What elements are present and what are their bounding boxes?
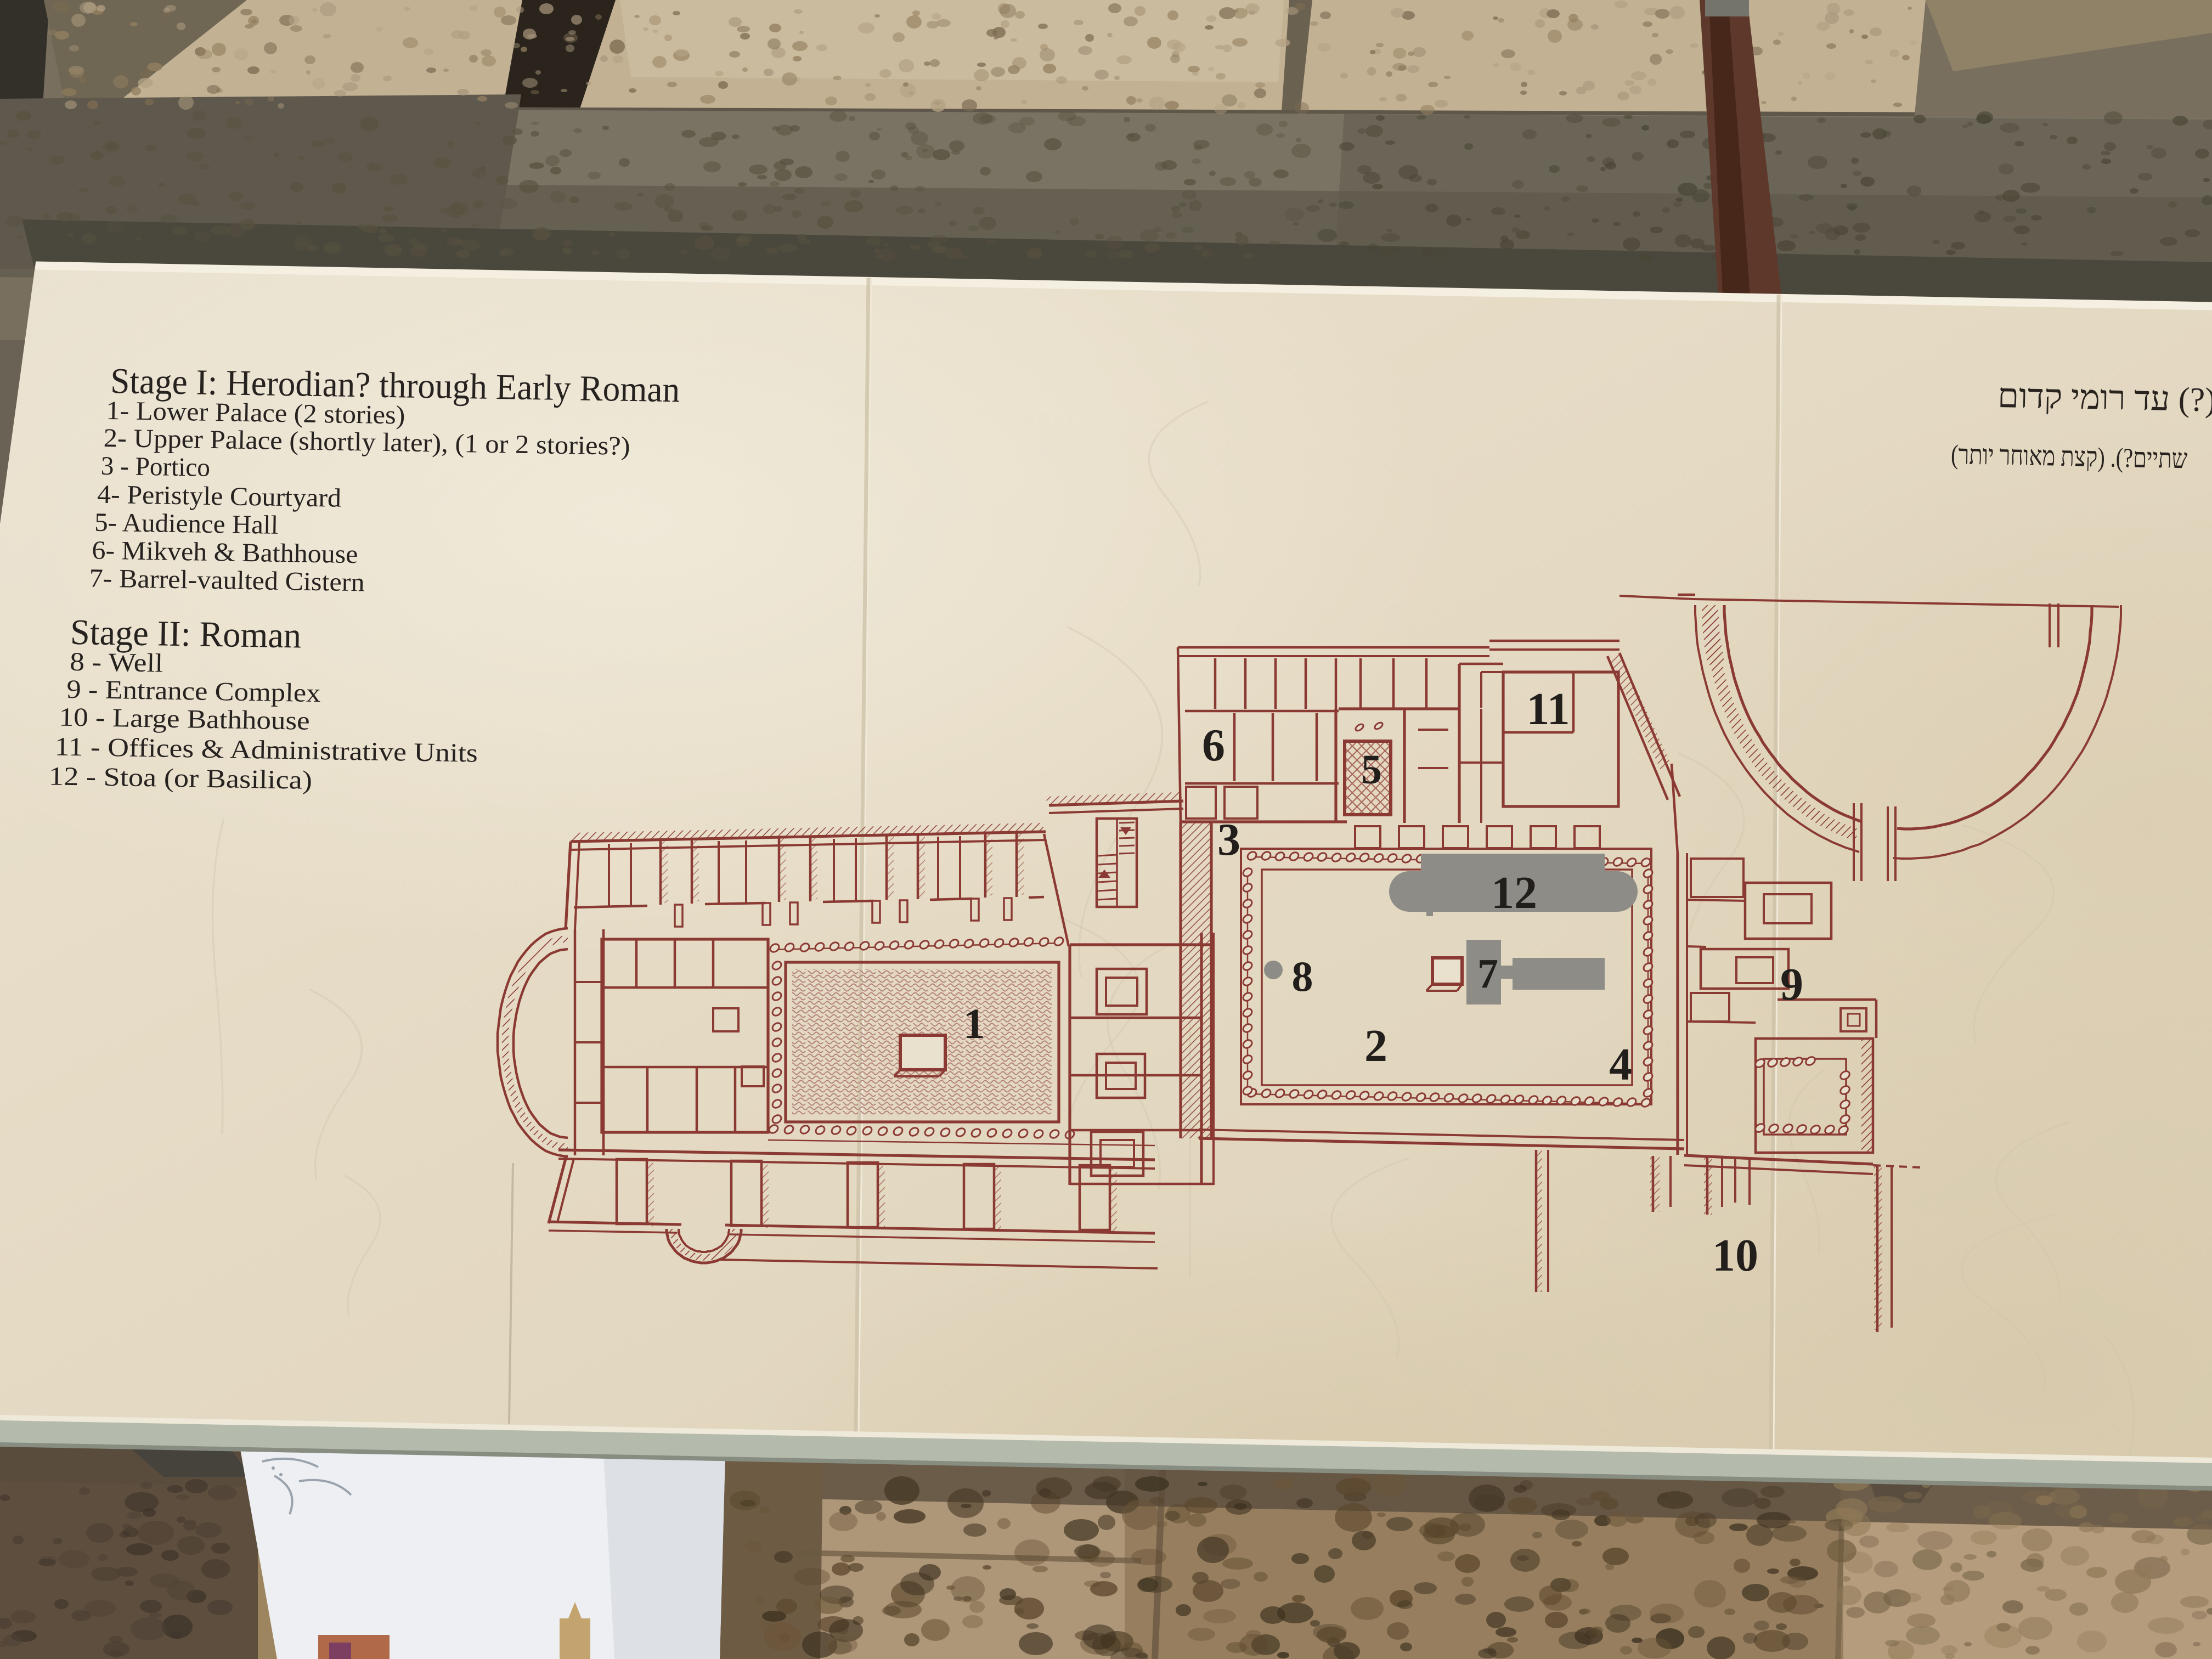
svg-text:4: 4 xyxy=(1609,1039,1632,1090)
svg-text:6: 6 xyxy=(1202,720,1225,771)
svg-text:5- Audience Hall: 5- Audience Hall xyxy=(94,508,279,540)
svg-text:3: 3 xyxy=(1217,814,1240,865)
svg-text:4- Peristyle Courtyard: 4- Peristyle Courtyard xyxy=(97,480,342,513)
svg-text:שתיים?). (קצת מאוחר יותר): שתיים?). (קצת מאוחר יותר) xyxy=(1951,439,2188,474)
svg-text:12: 12 xyxy=(1491,867,1537,918)
svg-text:9: 9 xyxy=(1780,959,1803,1010)
svg-text:7: 7 xyxy=(1477,951,1498,997)
svg-text:12 - Stoa (or Basilica): 12 - Stoa (or Basilica) xyxy=(49,761,313,795)
svg-text:3 - Portico: 3 - Portico xyxy=(100,452,210,482)
svg-text:5: 5 xyxy=(1361,747,1382,793)
svg-text:7- Barrel-vaulted Cistern: 7- Barrel-vaulted Cistern xyxy=(89,563,365,597)
svg-text:10: 10 xyxy=(1712,1230,1758,1281)
svg-text:ן (?) עד רומי קדום: ן (?) עד רומי קדום xyxy=(1997,377,2212,419)
svg-text:8 - Well: 8 - Well xyxy=(70,647,163,678)
svg-text:8: 8 xyxy=(1292,952,1313,1000)
svg-text:11: 11 xyxy=(1526,684,1570,735)
svg-text:1: 1 xyxy=(964,1000,985,1047)
svg-text:10 - Large Bathhouse: 10 - Large Bathhouse xyxy=(59,703,310,736)
svg-text:2: 2 xyxy=(1364,1020,1387,1071)
